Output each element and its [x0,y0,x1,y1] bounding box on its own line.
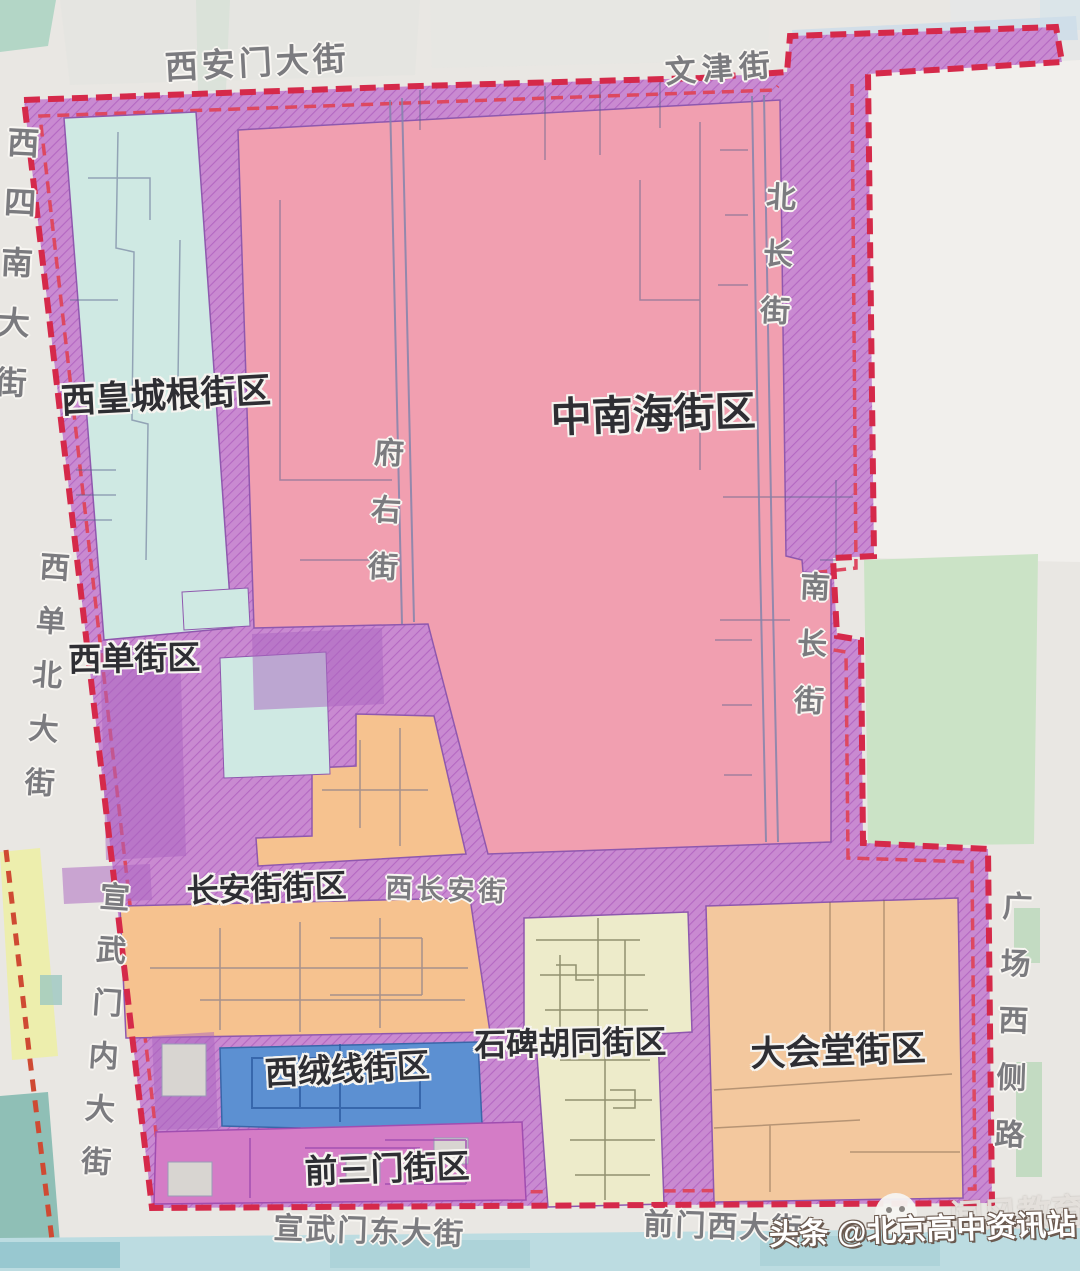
label-street-xuanwumen-dong-dajie: 宣武门东大街 [273,1212,466,1252]
label-district-shibeihutong: 石碑胡同街区 [474,1025,667,1064]
label-district-changanjie: 长安街街区 [186,868,347,909]
watermark-handle: @北京高中资讯站 [837,1208,1077,1249]
map-drawing [0,0,1080,1271]
label-district-dahuitang: 大会堂街区 [750,1030,926,1075]
watermark-source: 头条 [768,1217,829,1252]
label-street-xichangan-jie: 西长安街 [385,874,510,908]
label-district-zhongnanhai: 中南海街区 [550,389,756,441]
beijing-block-planning-map: 西皇城根街区 中南海街区 西单街区 长安街街区 西绒线街区 石碑胡同街区 大会堂… [0,0,1080,1271]
park-green-block [864,554,1038,846]
label-district-qiansanmen: 前三门街区 [304,1148,470,1190]
label-district-xidan: 西单街区 [68,640,201,679]
